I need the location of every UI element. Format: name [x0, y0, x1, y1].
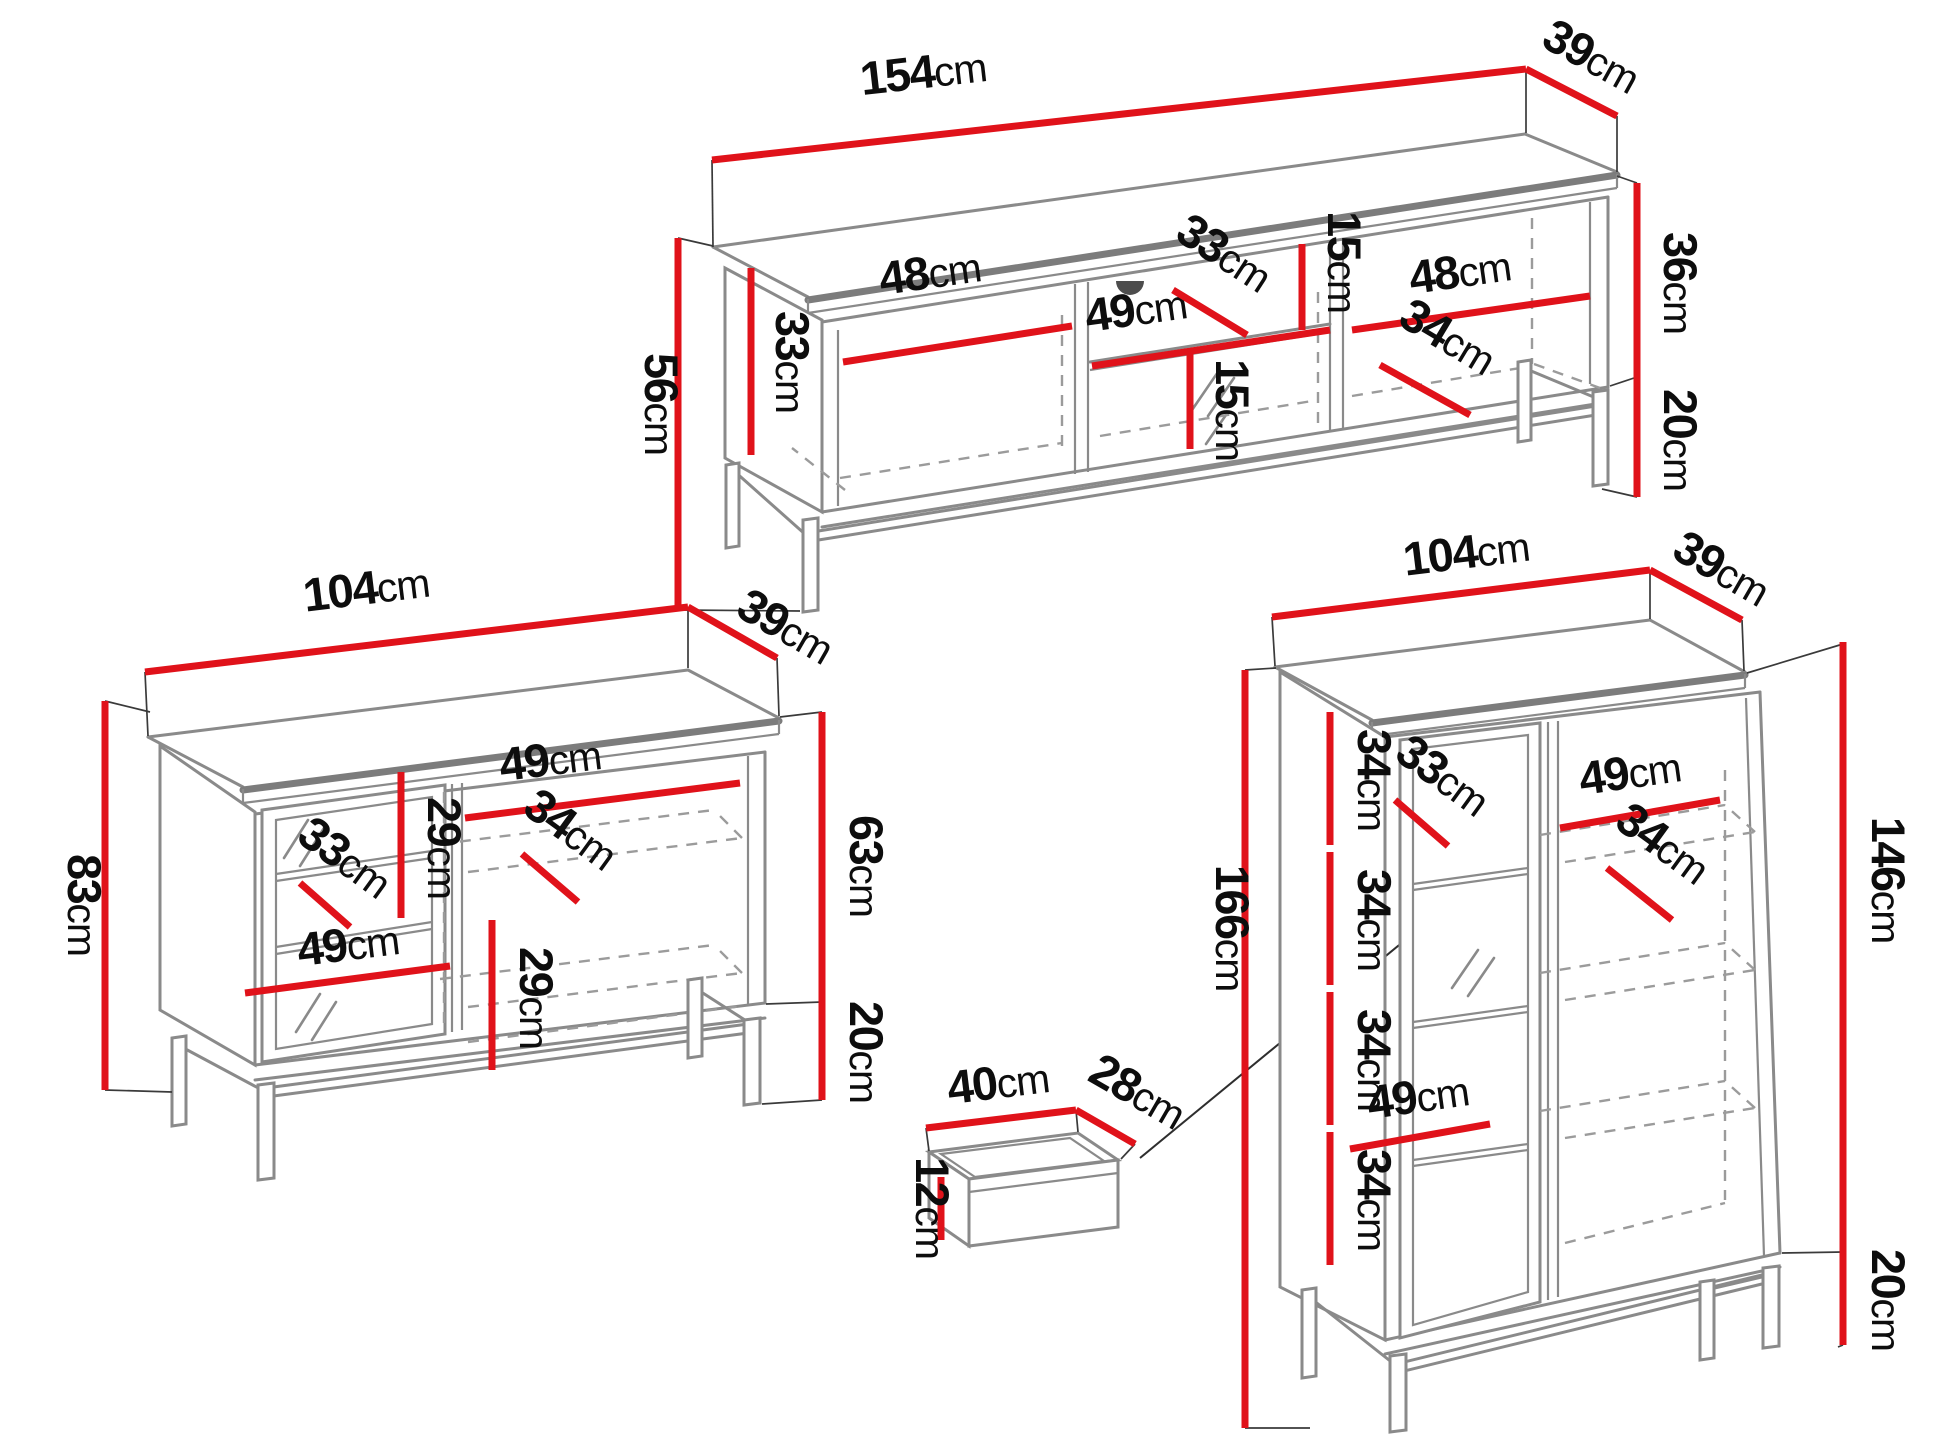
- vt-shelf-c-back: [1540, 1081, 1725, 1111]
- vt-body-right-edge: [1760, 692, 1780, 1253]
- tv-hidden-floor-right: [1352, 366, 1532, 396]
- sb-shelf-b-side: [714, 945, 742, 973]
- tv-side-inner-height-label: 33cm: [766, 311, 819, 413]
- dim-tv-top-niche: 15cm: [1302, 211, 1371, 330]
- tv-leg-rear-left: [726, 463, 739, 548]
- tv-total-height-label: 56cm: [635, 353, 688, 455]
- sb-depth-label: 39cm: [729, 577, 844, 674]
- vt-leg-front-right: [1763, 1266, 1779, 1348]
- dim-vt-depth: 39cm: [1650, 519, 1780, 671]
- dim-tv-depth: 39cm: [1526, 8, 1649, 172]
- dim-tv-right-shelf-depth: 34cm: [1380, 287, 1506, 415]
- sb-body-height-label: 63cm: [840, 815, 893, 917]
- tv-leg-height-label: 20cm: [1654, 389, 1707, 491]
- dim-sb-right-shelf-width: 49cm: [465, 726, 740, 818]
- sb-top-gap-label: 29cm: [418, 797, 471, 899]
- dim-tv-width: 154cm: [712, 38, 1526, 247]
- tv-frame-rail-bottom: [806, 414, 1602, 542]
- sideboard: 104cm 39cm 83cm 29cm 49cm 33cm 34cm: [58, 554, 893, 1180]
- vt-top-back-edge: [1275, 620, 1650, 667]
- sb-leg-height-label: 20cm: [840, 1001, 893, 1103]
- vt-depth-label: 39cm: [1665, 519, 1780, 616]
- sb-left-side-panel: [160, 746, 255, 1065]
- vt-leg-front-left: [1390, 1354, 1406, 1432]
- sb-leg-rear-right: [688, 978, 702, 1058]
- tv-bottom-niche-label: 15cm: [1206, 359, 1259, 461]
- tv-top-niche-label: 15cm: [1318, 211, 1371, 313]
- tv-stand: 154cm 39cm 56cm 33cm 48cm 49cm 33cm: [635, 8, 1707, 612]
- tv-depth-label: 39cm: [1535, 8, 1650, 104]
- vt-gap4-label: 34cm: [1348, 1149, 1401, 1251]
- dim-dr-depth: 28cm: [1076, 1042, 1196, 1159]
- dim-tv-leg-height: 20cm: [1602, 377, 1707, 497]
- tv-right-shelf-depth-label: 34cm: [1391, 287, 1506, 385]
- vt-shelf-b-front: [1565, 970, 1755, 1000]
- dim-vt-body-height: 146cm: [1747, 642, 1915, 1253]
- tv-left-compartment-label: 48cm: [876, 238, 984, 305]
- dim-vt-leg-height: 20cm: [1838, 1249, 1915, 1351]
- dim-dr-height: 12cm: [906, 1157, 959, 1259]
- vt-right-inner-wall: [1746, 698, 1764, 1256]
- sb-width-label: 104cm: [300, 554, 432, 622]
- vt-hidden-floor: [1565, 1203, 1725, 1243]
- furniture-dimension-diagram: 154cm 39cm 56cm 33cm 48cm 49cm 33cm: [0, 0, 1940, 1456]
- vt-shelf-c-side: [1725, 1081, 1755, 1108]
- vt-leg-rear-right: [1700, 1280, 1714, 1360]
- vt-gap2-label: 34cm: [1348, 869, 1401, 971]
- vt-body-height-label: 146cm: [1862, 817, 1915, 944]
- sb-total-height-label: 83cm: [58, 854, 111, 956]
- dim-sb-depth: 39cm: [688, 577, 844, 716]
- sb-leg-rear-left: [172, 1036, 186, 1126]
- drawer-height-label: 12cm: [906, 1157, 959, 1259]
- sb-leg-front-left: [258, 1083, 274, 1180]
- tv-leg-rear-right: [1518, 360, 1531, 442]
- tv-leg-front-left: [803, 518, 818, 612]
- drawer-width-label: 40cm: [944, 1049, 1052, 1114]
- sb-top-back-edge: [148, 670, 688, 737]
- display-cabinet: 104cm 39cm 166cm 34cm 34cm 34cm 34cm: [1206, 518, 1915, 1432]
- dim-vt-shelf-depth: 34cm: [1607, 791, 1721, 920]
- vt-total-height-label: 166cm: [1206, 865, 1259, 992]
- sb-bottom-gap-label: 29cm: [510, 947, 563, 1049]
- tv-width-label: 154cm: [857, 38, 989, 105]
- sb-top-right-edge: [688, 670, 779, 718]
- vt-leg-height-label: 20cm: [1862, 1249, 1915, 1351]
- sb-leg-front-right: [744, 1018, 760, 1105]
- vt-width-label: 104cm: [1400, 518, 1532, 586]
- vt-leg-rear-left: [1302, 1288, 1316, 1378]
- tv-hidden-floor-left: [840, 443, 1062, 478]
- vt-shelf-b-back: [1540, 943, 1725, 973]
- tv-leg-front-right: [1593, 390, 1608, 486]
- tv-frame-rail-top: [806, 405, 1602, 533]
- vt-shelf-b-side: [1725, 943, 1755, 970]
- dim-sb-width: 104cm: [145, 554, 688, 736]
- diagram-canvas: 154cm 39cm 56cm 33cm 48cm 49cm 33cm: [0, 0, 1940, 1456]
- vt-top-right-edge: [1650, 620, 1745, 672]
- vt-gap1-label: 34cm: [1348, 729, 1401, 831]
- tv-body-height-label: 36cm: [1654, 232, 1707, 334]
- tv-top-right-edge: [1525, 134, 1617, 172]
- dim-tv-right-compartment: 48cm: [1352, 237, 1590, 330]
- sb-shelf-a-side: [714, 810, 742, 838]
- vt-shelf-c-front: [1565, 1108, 1755, 1138]
- dim-sb-body-height: 63cm: [766, 712, 893, 1004]
- dim-sb-total-height: 83cm: [58, 701, 172, 1092]
- vt-top-shelf-width-label: 49cm: [1576, 738, 1684, 805]
- dim-sb-bottom-gap: 29cm: [492, 920, 563, 1070]
- sb-shelf-b-back: [440, 945, 714, 979]
- dim-tv-body-height: 36cm: [1610, 176, 1707, 386]
- dim-sb-leg-height: 20cm: [762, 1001, 893, 1104]
- dim-tv-bottom-niche: 15cm: [1190, 350, 1259, 461]
